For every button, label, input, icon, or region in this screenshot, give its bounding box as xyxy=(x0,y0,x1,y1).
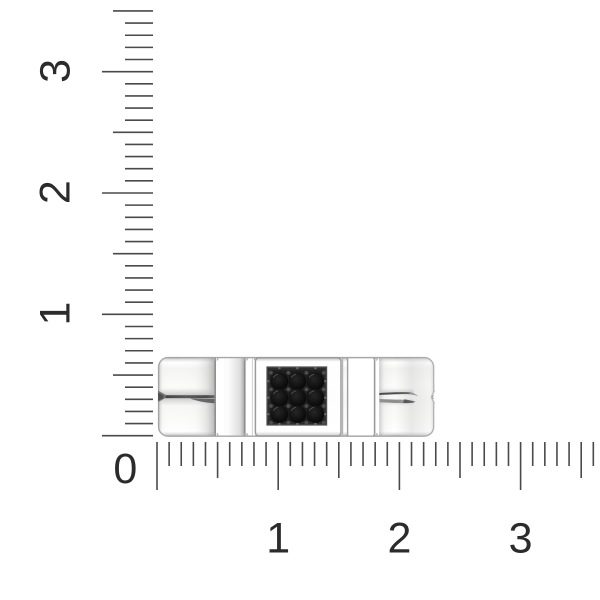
svg-text:3: 3 xyxy=(509,515,533,563)
svg-text:1: 1 xyxy=(32,302,80,326)
svg-text:2: 2 xyxy=(32,180,80,204)
svg-text:3: 3 xyxy=(32,59,80,83)
svg-text:0: 0 xyxy=(113,445,137,493)
svg-text:1: 1 xyxy=(266,515,290,563)
svg-text:2: 2 xyxy=(387,515,411,563)
